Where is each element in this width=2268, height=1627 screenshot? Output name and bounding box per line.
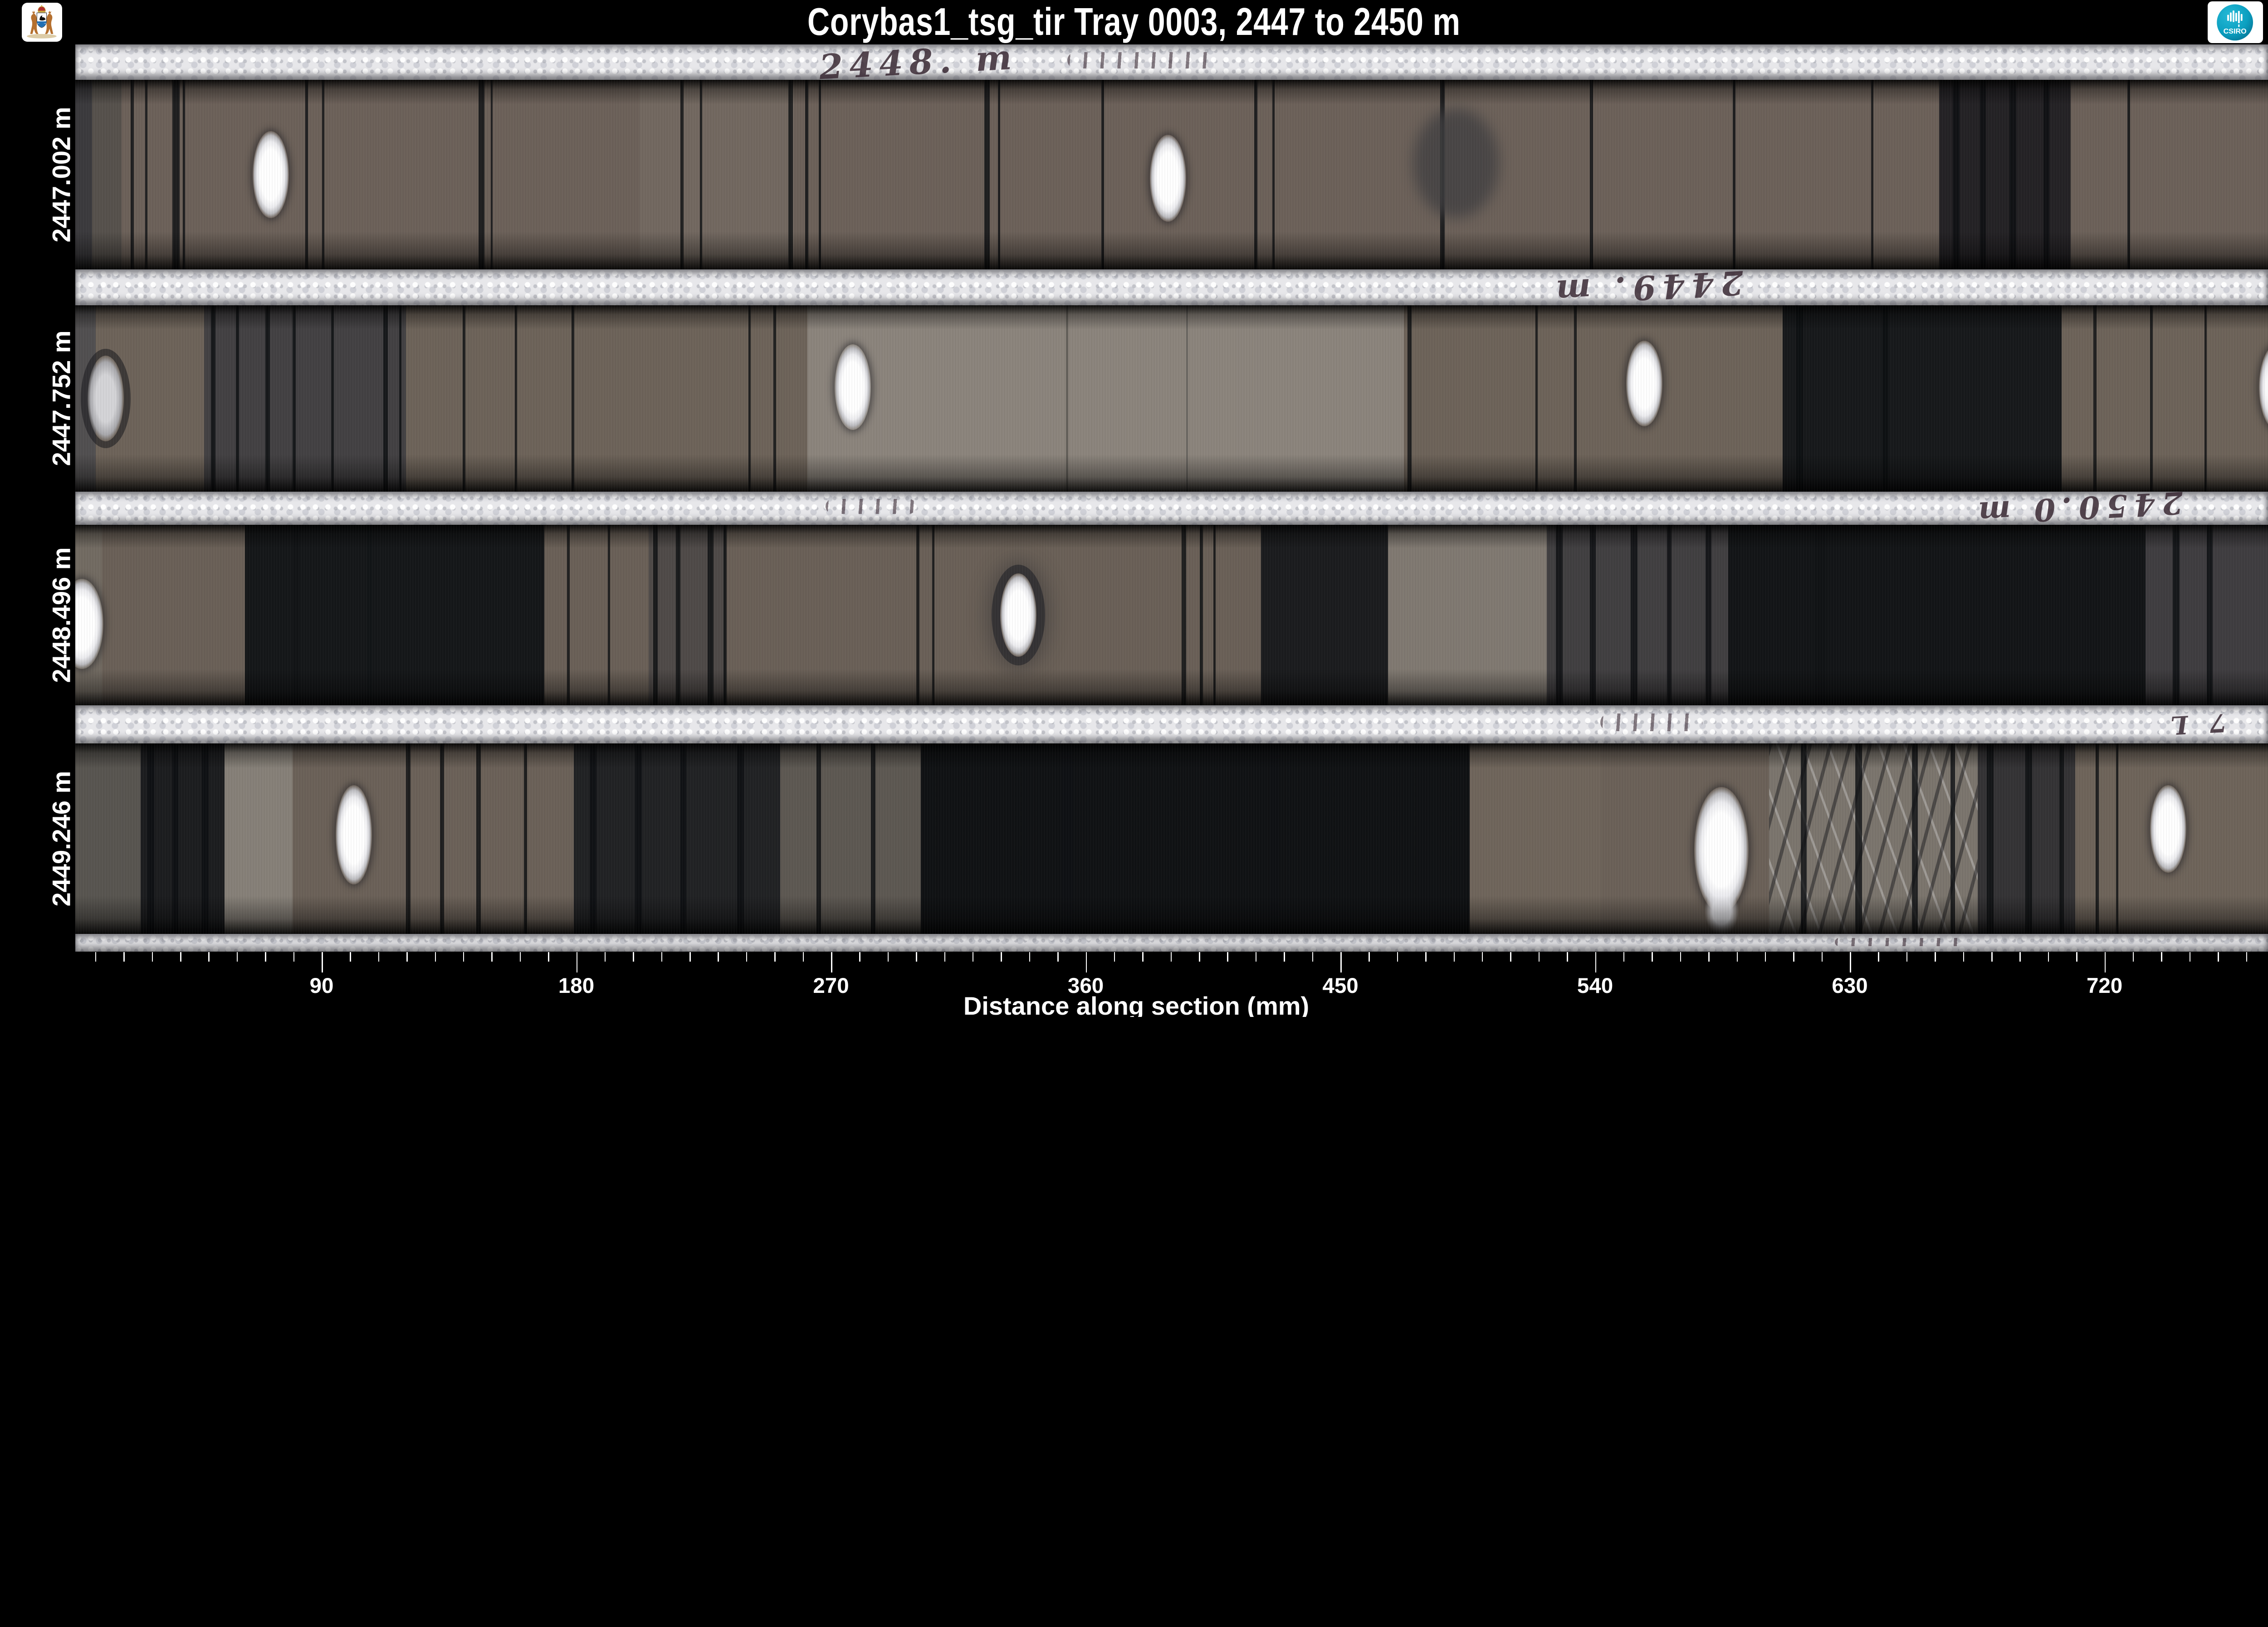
axis-tick-minor [661, 952, 663, 962]
axis-tick-major [1086, 952, 1087, 972]
plug-hole [1150, 135, 1186, 222]
core-streak [2059, 743, 2064, 934]
axis-tick-minor [548, 952, 549, 962]
handwritten-depth-mark: 2450.0 m [1971, 492, 2184, 525]
depth-label-row1: 2447.002 m [47, 107, 76, 243]
axis-tick-minor [1369, 952, 1370, 962]
core-streak [998, 80, 1000, 269]
axis-tick-minor [1906, 952, 1908, 962]
wa-coat-of-arms-graphic [23, 4, 60, 40]
axis-tick-minor [1397, 952, 1398, 962]
depth-label-row3: 2448.496 m [47, 547, 76, 683]
axis-tick-minor [746, 952, 748, 962]
axis-tick-label-450: 450 [1322, 973, 1358, 998]
axis-tick-label-540: 540 [1577, 973, 1613, 998]
core-streak [1101, 80, 1104, 269]
foam-strip-1: 2449. m [75, 269, 2268, 305]
core-streak [737, 743, 744, 934]
core-streak [572, 305, 574, 492]
core-streak [1272, 80, 1275, 269]
axis-tick-label-720: 720 [2087, 973, 2122, 998]
core-streak [676, 525, 680, 705]
core-streak [202, 743, 209, 934]
core-row1 [75, 80, 2268, 269]
core-streak [1186, 305, 1188, 492]
core-streak [1556, 525, 1563, 705]
core-band [640, 80, 794, 269]
foam-strip-2: 2450.0 m [75, 492, 2268, 525]
axis-tick-minor [2133, 952, 2134, 962]
axis-tick-major [577, 952, 578, 972]
core-row4 [75, 743, 2268, 934]
core-streak [1796, 305, 1803, 492]
axis-tick-minor [605, 952, 606, 962]
core-streak [147, 743, 154, 934]
axis-tick-minor [152, 952, 153, 962]
core-streak [748, 305, 751, 492]
axis-tick-minor [1737, 952, 1738, 962]
axis-tick-minor [293, 952, 295, 962]
axis-tick-minor [1935, 952, 1936, 962]
axis-tick-minor [208, 952, 210, 962]
core-band [75, 80, 93, 269]
core-band [1547, 525, 1728, 705]
core-streak [131, 80, 134, 269]
axis-tick-minor [1256, 952, 1257, 962]
handwriting-smudge [826, 499, 916, 514]
axis-tick-minor [2246, 952, 2248, 962]
core-streak [399, 305, 401, 492]
core-streak [1667, 525, 1672, 705]
core-tray-figure: Corybas1_tsg_tir Tray 0003, 2447 to 2450… [0, 0, 2268, 1017]
core-streak [653, 525, 658, 705]
axis-tick-minor [1001, 952, 1002, 962]
handwriting-smudge [1067, 52, 1215, 68]
axis-tick-minor [1793, 952, 1794, 962]
depth-label-row4: 2449.246 m [47, 771, 76, 906]
axis-tick-minor [265, 952, 266, 962]
axis-tick-major [1595, 952, 1597, 972]
axis-tick-minor [633, 952, 634, 962]
core-band [204, 305, 406, 492]
core-streak [1535, 305, 1538, 492]
core-band [649, 525, 726, 705]
core-streak [1061, 743, 1073, 934]
core-streak [984, 80, 990, 269]
axis-tick-minor [1567, 952, 1568, 962]
core-streak [932, 525, 934, 705]
core-band [574, 743, 780, 934]
core-streak [819, 80, 821, 269]
wa-coat-of-arms-icon [22, 3, 62, 42]
axis-tick-minor [2218, 952, 2219, 962]
axis-tick-label-630: 630 [1832, 973, 1867, 998]
axis-tick-major [1340, 952, 1342, 972]
axis-tick-minor [689, 952, 691, 962]
axis-tick-minor [1708, 952, 1710, 962]
core-streak [1631, 525, 1637, 705]
core-streak [773, 305, 776, 492]
core-streak [871, 743, 875, 934]
core-band [225, 743, 293, 934]
axis-tick-minor [1510, 952, 1511, 962]
plug-hole [835, 344, 871, 430]
core-streak [2009, 80, 2016, 269]
x-axis-title: Distance along section (mm) [963, 991, 1309, 1017]
core-streak [567, 525, 570, 705]
axis-tick-minor [718, 952, 719, 962]
core-streak [440, 743, 444, 934]
core-streak [608, 525, 610, 705]
axis-tick-label-270: 270 [813, 973, 849, 998]
core-streak [2127, 80, 2130, 269]
axis-tick-minor [1539, 952, 1540, 962]
core-streak [1254, 80, 1257, 269]
axis-tick-minor [123, 952, 125, 962]
core-band [1388, 525, 1547, 705]
axis-tick-minor [1623, 952, 1625, 962]
core-streak [1953, 80, 1960, 269]
core-streak [305, 80, 308, 269]
depth-label-row2: 2447.752 m [47, 331, 76, 466]
axis-tick-minor [774, 952, 776, 962]
core-streak [293, 525, 299, 705]
plug-hole [1000, 573, 1036, 656]
core-streak [2096, 743, 2099, 934]
axis-tick-minor [1680, 952, 1681, 962]
core-streak [2173, 525, 2180, 705]
handwriting-smudge [1835, 938, 1971, 946]
core-streak [1213, 525, 1216, 705]
core-band [1728, 525, 2146, 705]
axis-tick-minor [2048, 952, 2049, 962]
axis-tick-minor [1425, 952, 1427, 962]
axis-tick-label-90: 90 [310, 973, 334, 998]
core-band [1769, 743, 1978, 934]
axis-tick-minor [888, 952, 889, 962]
core-streak [1590, 80, 1593, 269]
core-streak [916, 525, 919, 705]
core-band [92, 80, 122, 269]
axis-tick-minor [1029, 952, 1031, 962]
core-streak [1270, 743, 1279, 934]
foam-strip-4 [75, 934, 2268, 952]
axis-tick-minor [859, 952, 860, 962]
axis-tick-minor [1454, 952, 1455, 962]
core-streak [1182, 525, 1186, 705]
axis-tick-minor [916, 952, 917, 962]
handwritten-depth-mark: 2448. m [818, 44, 1019, 80]
core-streak [367, 525, 372, 705]
core-streak [723, 525, 727, 705]
core-streak [172, 743, 178, 934]
core-band [921, 743, 1476, 934]
core-streak [708, 525, 714, 705]
axis-tick-minor [95, 952, 97, 962]
core-streak [479, 80, 484, 269]
axis-tick-label-180: 180 [558, 973, 594, 998]
core-band [1470, 743, 1601, 934]
axis-tick-minor [435, 952, 436, 962]
core-streak [1882, 305, 1888, 492]
core-band [1261, 525, 1388, 705]
core-streak [463, 305, 465, 492]
core-band [807, 305, 1404, 492]
axis-tick-minor [2190, 952, 2191, 962]
axis-tick-minor [1312, 952, 1314, 962]
plug-hole [1705, 886, 1739, 934]
axis-tick-minor [944, 952, 946, 962]
axis-tick-minor [1114, 952, 1115, 962]
foam-strip-3: 7 L [75, 705, 2268, 743]
core-streak [2207, 525, 2213, 705]
page-title: Corybas1_tsg_tir Tray 0003, 2447 to 2450… [807, 0, 1461, 44]
core-streak [680, 743, 686, 934]
title-wrap: Corybas1_tsg_tir Tray 0003, 2447 to 2450… [0, 0, 2268, 44]
core-streak [816, 743, 821, 934]
core-streak [2116, 743, 2118, 934]
core-streak [491, 80, 493, 269]
core-streak [383, 305, 388, 492]
axis-tick-minor [378, 952, 380, 962]
axis-tick-minor [1057, 952, 1059, 962]
core-streak [2025, 743, 2032, 934]
handwritten-depth-mark: 2449. m [1549, 269, 1745, 305]
core-streak [1733, 80, 1735, 269]
core-streak [1871, 80, 1873, 269]
core-row2 [75, 305, 2268, 492]
axis-tick-minor [2161, 952, 2162, 962]
axis-tick-minor [406, 952, 408, 962]
core-streak [590, 743, 596, 934]
core-streak [236, 305, 239, 492]
core-streak [700, 80, 702, 269]
core-streak [2043, 80, 2049, 269]
core-streak [293, 305, 296, 492]
core-streak [183, 80, 185, 269]
core-streak [524, 743, 527, 934]
axis-tick-minor [1199, 952, 1200, 962]
core-streak [515, 305, 517, 492]
axis-tick-minor [1482, 952, 1483, 962]
axis-tick-minor [1652, 952, 1653, 962]
axis-tick-minor [1765, 952, 1766, 962]
core-streak [145, 80, 147, 269]
axis-tick-minor [973, 952, 974, 962]
header-bar: Corybas1_tsg_tir Tray 0003, 2447 to 2450… [0, 0, 2268, 44]
dark-stain [1413, 108, 1499, 218]
axis-tick-minor [1227, 952, 1228, 962]
core-streak [2093, 305, 2097, 492]
core-streak [2204, 305, 2207, 492]
core-streak [211, 305, 215, 492]
axis-tick-minor [1878, 952, 1879, 962]
axis-tick-minor [491, 952, 493, 962]
axis-tick-minor [463, 952, 464, 962]
axis-tick-minor [803, 952, 804, 962]
core-streak [2150, 305, 2153, 492]
plug-hole [253, 131, 289, 218]
core-band [1783, 305, 2062, 492]
plug-hole [88, 356, 124, 441]
plug-hole [2259, 344, 2268, 430]
core-row3 [75, 525, 2268, 705]
core-streak [1980, 80, 1986, 269]
handwriting-smudge [1600, 713, 1702, 731]
plug-hole [336, 785, 372, 884]
axis-tick-major [2105, 952, 2106, 972]
core-streak [331, 305, 334, 492]
foam-strip-0: 2448. m [75, 44, 2268, 80]
axis-tick-major [831, 952, 832, 972]
plug-hole [1626, 341, 1662, 426]
axis-tick-minor [2076, 952, 2077, 962]
core-streak [172, 80, 180, 269]
handwritten-depth-mark: 7 L [2163, 708, 2227, 741]
axis-tick-minor [2019, 952, 2021, 962]
axis-tick-minor [520, 952, 521, 962]
core-streak [1912, 743, 1918, 934]
csiro-logo-icon: CSIRO [2208, 1, 2263, 43]
csiro-logo-text: CSIRO [2224, 27, 2247, 35]
core-streak [1801, 743, 1807, 934]
core-streak [322, 80, 324, 269]
core-streak [635, 743, 642, 934]
core-streak [1066, 305, 1068, 492]
core-streak [265, 305, 270, 492]
core-streak [1987, 743, 1994, 934]
core-streak [476, 743, 481, 934]
axis-tick-minor [237, 952, 238, 962]
axis-tick-minor [1963, 952, 1965, 962]
axis-tick-minor [1822, 952, 1823, 962]
axis-tick-major [322, 952, 323, 972]
core-streak [1408, 305, 1412, 492]
axis-tick-major [1850, 952, 1851, 972]
axis-tick-minor [350, 952, 351, 962]
axis-tick-minor [180, 952, 181, 962]
axis-tick-minor [1991, 952, 1993, 962]
axis-tick-minor [1142, 952, 1144, 962]
plug-hole [2150, 785, 2186, 873]
core-streak [1590, 525, 1596, 705]
core-band [780, 743, 921, 934]
core-band [75, 743, 141, 934]
core-streak [1574, 305, 1577, 492]
core-streak [1855, 743, 1862, 934]
core-band [245, 525, 544, 705]
csiro-logo-graphic: CSIRO [2209, 3, 2260, 42]
axis-tick-minor [1171, 952, 1172, 962]
core-streak [788, 80, 793, 269]
core-streak [805, 80, 808, 269]
core-streak [1706, 525, 1711, 705]
core-streak [1950, 743, 1955, 934]
core-streak [1200, 525, 1203, 705]
core-streak [680, 80, 684, 269]
core-streak [1814, 525, 1826, 705]
axis-tick-minor [1284, 952, 1285, 962]
core-streak [406, 743, 411, 934]
